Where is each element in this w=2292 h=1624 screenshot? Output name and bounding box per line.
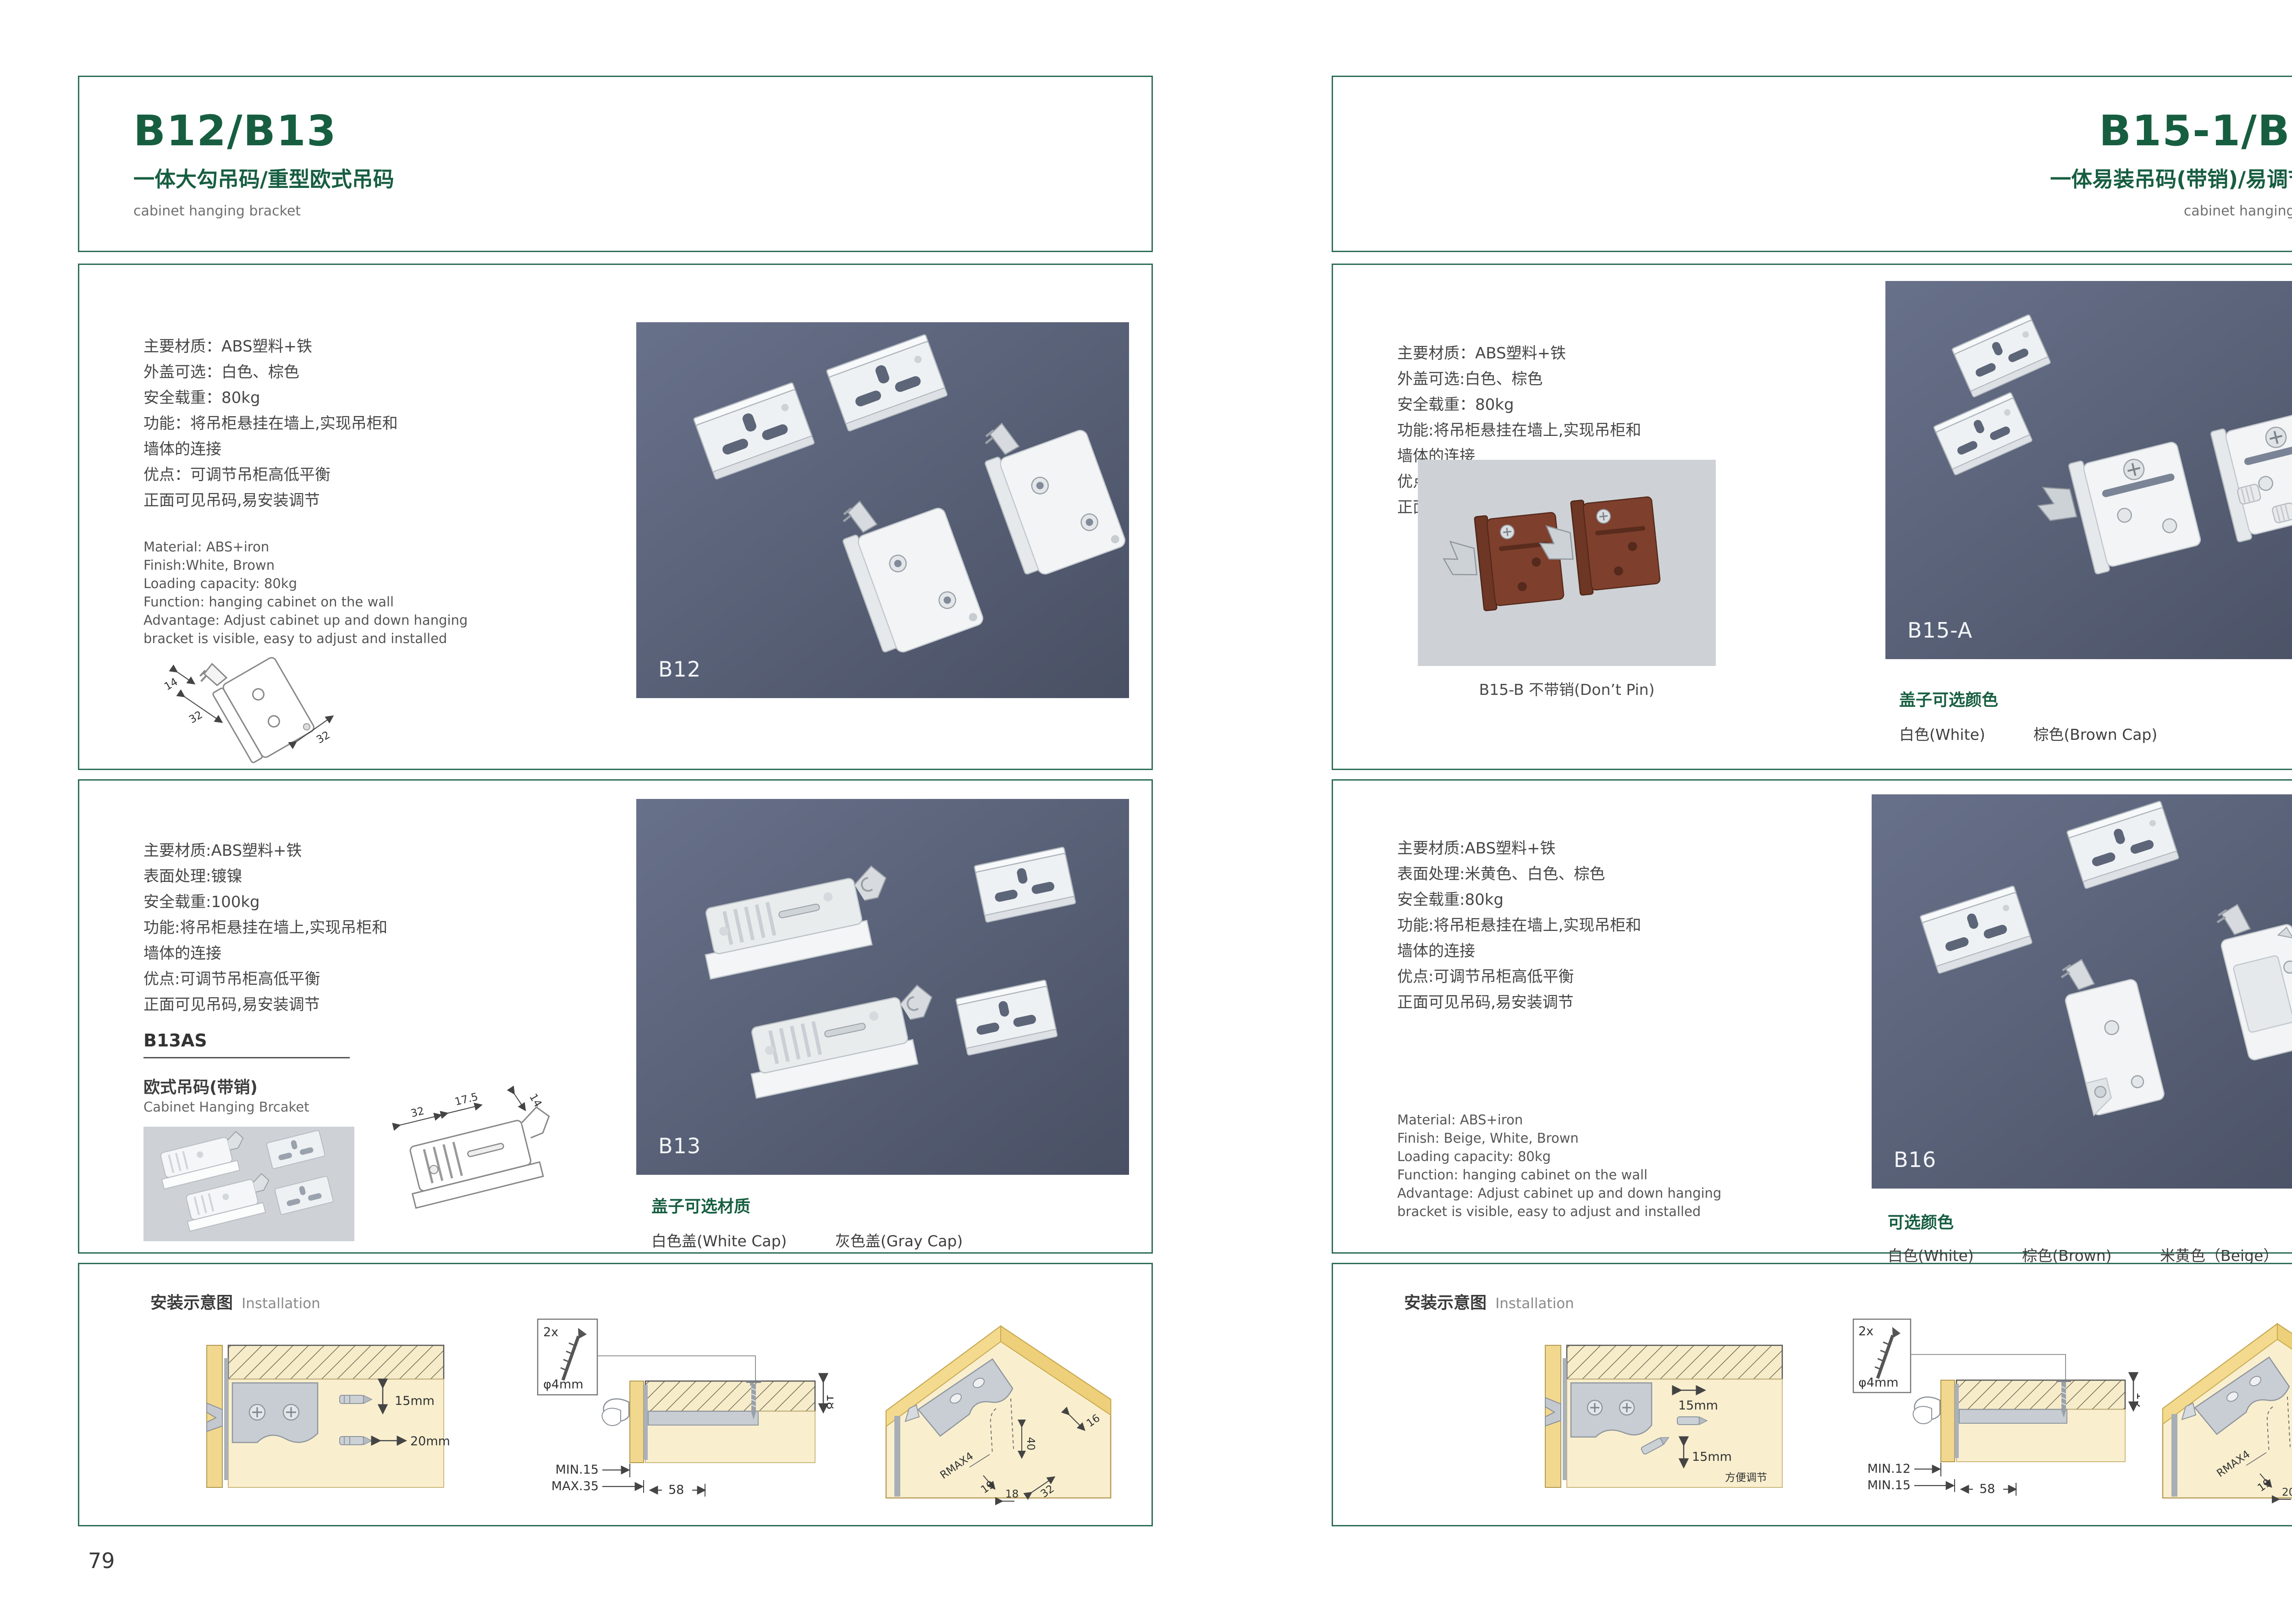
b13-specs-cn: 主要材质:ABS塑料+铁 表面处理:镀镍 安全载重:100kg 功能:将吊柜悬挂… — [143, 838, 387, 1018]
spec-line: 墙体的连接 — [143, 941, 387, 966]
spec-line: 安全载重：80kg — [143, 385, 398, 411]
header-right: B15-1/B16 一体易装吊码(带销)/易调节吊码 cabinet hangi… — [1332, 76, 2292, 252]
spec-line: 正面可见吊码,易安装调节 — [1397, 990, 1641, 1015]
b12-specs-en: Material: ABS+iron Finish:White, Brown L… — [143, 538, 468, 648]
page-title: B15-1/B16 — [1387, 109, 2292, 154]
option-item: 白色(White) — [1888, 1247, 1974, 1265]
screw-count: 2x — [543, 1325, 558, 1339]
page-category: cabinet hanging bracket — [1387, 203, 2292, 219]
dim-label: MIN.12 — [1868, 1462, 1911, 1476]
spec-line: 墙体的连接 — [1397, 938, 1641, 964]
dim-label: 32 — [409, 1105, 425, 1120]
spec-line: 主要材质:ABS塑料+铁 — [143, 838, 387, 864]
page-subtitle: 一体易装吊码(带销)/易调节吊码 — [1387, 163, 2292, 193]
spec-line: Finish: Beige, White, Brown — [1397, 1129, 1721, 1147]
product-label: B16 — [1894, 1147, 1936, 1172]
bracket-drawing — [196, 652, 315, 765]
options-row: 白色(White) 棕色(Brown Cap) — [1899, 722, 2201, 744]
dim-label: MAX.35 — [551, 1479, 599, 1493]
option-item: 棕色(Brown Cap) — [2033, 726, 2157, 743]
spec-line: 优点:可调节吊柜高低平衡 — [1397, 964, 1641, 990]
installation-title: 安装示意图 Installation — [1404, 1289, 1574, 1313]
dim-label: 58 — [1979, 1482, 1995, 1496]
spec-line: bracket is visible, easy to adjust and i… — [143, 629, 468, 648]
dim-label: MIN.15 — [1868, 1478, 1911, 1492]
hook-section — [1913, 1406, 1932, 1424]
bracket-section — [648, 1411, 758, 1425]
rail-profile — [644, 1385, 648, 1460]
spec-line: 功能：将吊柜悬挂在墙上,实现吊柜和 — [143, 411, 398, 436]
note-label: 方便调节 — [1725, 1472, 1767, 1484]
screw-count: 2x — [1858, 1324, 1873, 1338]
screw-diameter: φ4mm — [543, 1377, 584, 1392]
spec-line: 表面处理:镀镍 — [143, 864, 387, 889]
option-item: 白色(White) — [1899, 726, 1985, 743]
dim-label: 18 — [824, 1394, 833, 1409]
b13-photo-art — [636, 799, 1129, 1175]
b16-photo-art — [1872, 794, 2292, 1189]
spec-line: 功能:将吊柜悬挂在墙上,实现吊柜和 — [143, 915, 387, 941]
section-b13: 主要材质:ABS塑料+铁 表面处理:镀镍 安全载重:100kg 功能:将吊柜悬挂… — [78, 779, 1153, 1254]
b12-photo-art — [636, 322, 1129, 698]
options-title: 盖子可选材质 — [651, 1193, 750, 1217]
spec-line: Function: hanging cabinet on the wall — [1397, 1166, 1721, 1184]
product-label: B13 — [658, 1134, 701, 1158]
dim-label: 32 — [187, 709, 204, 726]
rail-profile — [224, 1358, 228, 1480]
spec-line: 功能:将吊柜悬挂在墙上,实现吊柜和 — [1397, 418, 1641, 443]
option-item: 灰色盖(Gray Cap) — [835, 1232, 963, 1250]
spec-line: 安全载重：80kg — [1397, 392, 1641, 418]
model-code: B13AS — [143, 1030, 350, 1058]
page-number-left: 79 — [88, 1548, 115, 1573]
model-name-cn: 欧式吊码(带销) — [143, 1074, 258, 1098]
spec-line: Function: hanging cabinet on the wall — [143, 593, 468, 611]
install-diagram-section: 15mm 20mm — [194, 1335, 464, 1503]
section-b12: 主要材质：ABS塑料+铁 外盖可选：白色、棕色 安全载重：80kg 功能：将吊柜… — [78, 264, 1153, 770]
bracket-section — [1571, 1383, 1652, 1437]
dim-label: 18 — [1005, 1488, 1019, 1500]
spec-line: 优点：可调节吊柜高低平衡 — [143, 462, 398, 488]
rail-bar — [2171, 1414, 2177, 1497]
install-diagram-screw: 2x φ4mm — [531, 1312, 833, 1500]
b16-specs-cn: 主要材质:ABS塑料+铁 表面处理:米黄色、白色、棕色 安全载重:80kg 功能… — [1397, 836, 1641, 1015]
b12-dimension-drawing: 14 32 32 — [125, 652, 382, 765]
catalog-spread: B12/B13 一体大勾吊码/重型欧式吊码 cabinet hanging br… — [0, 0, 2292, 1624]
options-title: 可选颜色 — [1888, 1209, 1954, 1233]
cabinet-top-panel — [645, 1381, 815, 1411]
page-80: B15-1/B16 一体易装吊码(带销)/易调节吊码 cabinet hangi… — [1332, 0, 2292, 1624]
b13-product-photo: B13 — [636, 799, 1129, 1175]
spec-line: Loading capacity: 80kg — [1397, 1147, 1721, 1166]
b16-product-photo: B16 — [1872, 794, 2292, 1189]
spec-line: 功能:将吊柜悬挂在墙上,实现吊柜和 — [1397, 913, 1641, 938]
cabinet-top-panel — [1567, 1345, 1782, 1379]
rail-bar — [894, 1416, 900, 1497]
installation-title-cn: 安装示意图 — [150, 1294, 233, 1312]
install-diagram-screw: 2x φ4mm — [1846, 1312, 2140, 1500]
install-diagram-section: 15mm 15mm 方便调节 — [1532, 1335, 1798, 1503]
product-label: B15-A — [1907, 618, 1972, 643]
dim-label: 17.5 — [453, 1091, 479, 1108]
section-b15: 主要材质：ABS塑料+铁 外盖可选:白色、棕色 安全载重：80kg 功能:将吊柜… — [1332, 264, 2292, 770]
option-item: 米黄色（Beige） — [2160, 1247, 2278, 1265]
hook-section — [602, 1408, 621, 1426]
spec-line: 表面处理:米黄色、白色、棕色 — [1397, 861, 1641, 887]
rail-profile — [1563, 1358, 1567, 1480]
install-diagram-perspective: 30 32 RMAX4 19 20 32 — [2133, 1289, 2292, 1514]
b13as-dimension-drawing: 32 17.5 14 — [377, 1074, 570, 1230]
b15b-caption: B15-B 不带销(Don’t Pin) — [1418, 677, 1716, 699]
dim-label: 32 — [314, 729, 332, 746]
cabinet-top-panel — [1956, 1380, 2125, 1409]
product-label: B12 — [658, 657, 701, 682]
installation-title: 安装示意图 Installation — [150, 1289, 320, 1313]
spec-line: 外盖可选:白色、棕色 — [1397, 366, 1641, 392]
spec-line: Finish:White, Brown — [143, 556, 468, 574]
section-b16: 主要材质:ABS塑料+铁 表面处理:米黄色、白色、棕色 安全载重:80kg 功能… — [1332, 779, 2292, 1254]
rail-profile — [1955, 1384, 1959, 1458]
installation-title-en: Installation — [1495, 1295, 1574, 1312]
bracket-section — [232, 1383, 318, 1442]
header-left: B12/B13 一体大勾吊码/重型欧式吊码 cabinet hanging br… — [78, 76, 1153, 252]
b15a-photo-art — [1885, 281, 2292, 659]
dim-label: 40 — [1025, 1437, 1036, 1450]
b12-product-photo: B12 — [636, 322, 1129, 698]
spec-line: Material: ABS+iron — [143, 538, 468, 556]
b15b-photo — [1418, 460, 1716, 666]
spec-line: Advantage: Adjust cabinet up and down ha… — [1397, 1184, 1721, 1202]
options-title: 盖子可选颜色 — [1899, 687, 1998, 710]
spec-line: 主要材质:ABS塑料+铁 — [1397, 836, 1641, 861]
option-item: 白色盖(White Cap) — [651, 1232, 787, 1250]
b13as-set-photo — [143, 1127, 354, 1241]
dim-label: 20mm — [410, 1434, 450, 1448]
spec-line: 安全载重:100kg — [143, 889, 387, 915]
spec-line: 主要材质：ABS塑料+铁 — [143, 334, 398, 359]
dim-label: 15mm — [1678, 1398, 1718, 1413]
b16-specs-en: Material: ABS+iron Finish: Beige, White,… — [1397, 1111, 1721, 1221]
b15a-product-photo: B15-A — [1885, 281, 2292, 659]
dim-label: 14 — [162, 676, 180, 693]
spec-line: Material: ABS+iron — [1397, 1111, 1721, 1129]
bracket-section — [1959, 1409, 2067, 1423]
spec-line: 外盖可选：白色、棕色 — [143, 359, 398, 385]
wall-strip — [1941, 1380, 1955, 1462]
dim-label: 14 — [527, 1092, 544, 1109]
b13as-photo-art — [143, 1127, 354, 1241]
spec-line: 正面可见吊码,易安装调节 — [143, 488, 398, 513]
spec-line: Loading capacity: 80kg — [143, 574, 468, 593]
screw-diameter: φ4mm — [1858, 1376, 1899, 1390]
page-category: cabinet hanging bracket — [133, 203, 1097, 219]
option-item: 棕色(Brown) — [2022, 1247, 2111, 1265]
spec-line: 墙体的连接 — [143, 436, 398, 462]
installation-title-en: Installation — [242, 1295, 320, 1312]
spec-line: bracket is visible, easy to adjust and i… — [1397, 1202, 1721, 1221]
wall-strip — [630, 1381, 644, 1463]
dim-label: 20 — [2282, 1486, 2292, 1498]
installation-title-cn: 安装示意图 — [1404, 1294, 1487, 1312]
spec-line: 正面可见吊码,易安装调节 — [143, 992, 387, 1018]
spec-line: 优点:可调节吊柜高低平衡 — [143, 966, 387, 992]
dim-label: 58 — [668, 1483, 684, 1497]
dim-label: 15mm — [1692, 1450, 1732, 1464]
page-title: B12/B13 — [133, 109, 1097, 154]
options-row: 白色盖(White Cap) 灰色盖(Gray Cap) — [651, 1229, 1006, 1251]
brown-bracket — [1440, 508, 1565, 614]
installation-left: 安装示意图 Installation — [78, 1263, 1153, 1526]
bracket-drawing — [399, 1105, 562, 1208]
model-name-en: Cabinet Hanging Brcaket — [143, 1099, 309, 1115]
page-subtitle: 一体大勾吊码/重型欧式吊码 — [133, 163, 1097, 193]
dim-label: 15mm — [395, 1394, 435, 1408]
cabinet-top-panel — [228, 1345, 444, 1379]
b12-specs-cn: 主要材质：ABS塑料+铁 外盖可选：白色、棕色 安全载重：80kg 功能：将吊柜… — [143, 334, 398, 513]
spec-line: 主要材质：ABS塑料+铁 — [1397, 341, 1641, 366]
options-row: 白色(White) 棕色(Brown) 米黄色（Beige） — [1888, 1244, 2292, 1266]
b15b-photo-art — [1418, 460, 1716, 666]
page-79: B12/B13 一体大勾吊码/重型欧式吊码 cabinet hanging br… — [78, 0, 1153, 1624]
spec-line: Advantage: Adjust cabinet up and down ha… — [143, 611, 468, 629]
installation-right: 安装示意图 Installation — [1332, 1263, 2292, 1526]
spec-line: 安全载重:80kg — [1397, 887, 1641, 913]
install-diagram-perspective: 16 40 RMAX4 19 18 32 — [854, 1294, 1124, 1514]
dim-label: MIN.15 — [556, 1463, 599, 1477]
